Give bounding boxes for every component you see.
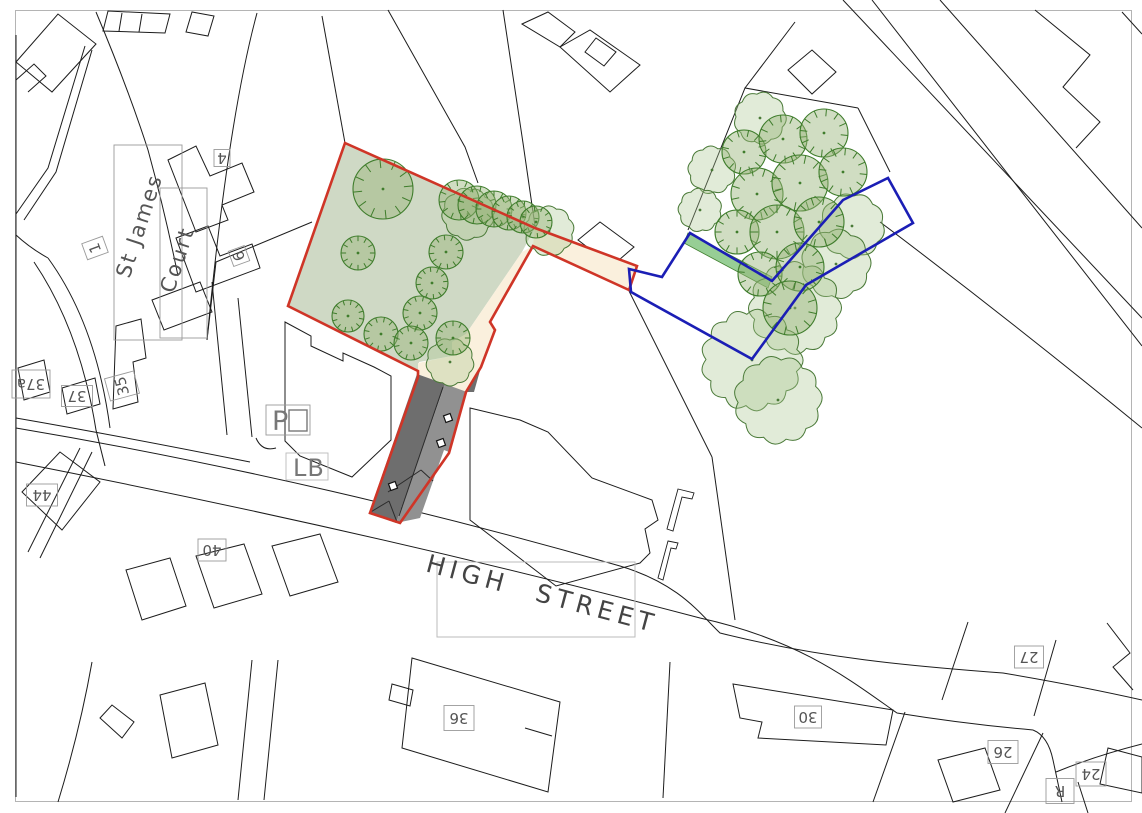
site-plan-page: 41637a373544403630272624RSt JamesCourtPL…: [0, 0, 1142, 813]
parcel-line: [522, 12, 575, 47]
tree-trunk-dot: [449, 361, 452, 364]
house-number-label: 37a: [12, 370, 50, 398]
parcel-line: [238, 298, 252, 437]
house-number-text: R: [1055, 782, 1065, 800]
parcel-line: [503, 10, 535, 226]
house-number-text: 37: [67, 387, 86, 405]
parcel-line: [388, 10, 478, 183]
parcel-line: [160, 683, 218, 758]
parcel-line: [663, 662, 670, 798]
parcel-line: [843, 0, 1142, 318]
parcel-line: [629, 291, 712, 457]
parcel-line: [168, 146, 254, 232]
house-number-label: 30: [795, 706, 822, 728]
parcel-line: [1107, 623, 1133, 690]
house-number-label: 24: [1076, 762, 1106, 786]
parcel-line: [207, 13, 257, 340]
parcel-line: [16, 235, 48, 258]
tree-trunk-dot: [711, 169, 714, 172]
gate-symbol: [667, 489, 694, 531]
street-name-label: HIGH STREET: [423, 549, 661, 639]
parcel-line: [389, 684, 413, 706]
parcel-line: [100, 705, 134, 738]
parcel-line: [1078, 782, 1088, 813]
tree: [341, 236, 375, 270]
parcel-line: [938, 748, 1000, 802]
parcel-line: [560, 30, 640, 92]
parcel-line: [745, 22, 795, 88]
parcel-line: [470, 408, 658, 586]
tree: [429, 235, 463, 269]
tree-trunk-dot: [851, 225, 854, 228]
parcel-line: [256, 438, 276, 449]
tree: [794, 197, 844, 247]
house-number-label: 26: [988, 741, 1018, 764]
letter-box-label: LB: [286, 453, 328, 482]
parcel-line: [322, 16, 345, 143]
tree-trunk-dot: [835, 263, 838, 266]
parcel-line: [58, 662, 92, 802]
house-number-text: 1: [85, 240, 105, 255]
rooflight: [437, 439, 446, 448]
post-office-label: P: [266, 405, 310, 437]
parcel-line: [402, 658, 560, 792]
house-number-text: 4: [217, 149, 227, 167]
parcel-line: [16, 64, 46, 92]
parcel-line: [873, 712, 905, 802]
tree: [819, 148, 867, 196]
map-linework: [16, 0, 1142, 813]
parcel-line: [238, 660, 252, 800]
gate-symbols: [658, 489, 694, 580]
parcel-line: [585, 38, 616, 66]
house-number-label: R: [1046, 779, 1074, 804]
house-number-text: 37a: [17, 375, 45, 393]
parcel-line: [103, 11, 170, 33]
house-number-text: 36: [449, 709, 468, 727]
house-number-text: 40: [202, 541, 221, 559]
gate-symbol: [658, 541, 678, 580]
tree-trunk-dot: [759, 117, 762, 120]
parcel-line: [272, 534, 338, 596]
tree-trunk-dot: [699, 209, 702, 212]
parcel-line: [525, 728, 552, 736]
parcel-line: [788, 50, 836, 94]
house-number-text: 27: [1019, 648, 1038, 666]
tree: [436, 321, 470, 355]
house-number-text: 44: [32, 486, 51, 504]
parcel-line: [1035, 10, 1100, 148]
parcel-line: [16, 418, 250, 462]
parcel-line: [119, 13, 122, 31]
po-text: P: [272, 406, 288, 437]
parcel-line: [880, 222, 1142, 428]
po-square: [289, 410, 307, 431]
site-plan-svg: 41637a373544403630272624RSt JamesCourtPL…: [0, 0, 1142, 813]
st-james-court-label: St JamesCourt: [111, 145, 207, 340]
parcel-line: [264, 660, 278, 800]
house-number-label: 40: [198, 539, 226, 561]
house-number-label: 36: [444, 706, 474, 731]
parcel-line: [872, 0, 1142, 346]
tree: [332, 300, 364, 332]
tree-trunk-dot: [777, 399, 780, 402]
house-number-label: 4: [214, 149, 230, 167]
parcel-line: [186, 12, 214, 36]
parcel-line: [940, 0, 1142, 228]
house-number-label: 27: [1015, 646, 1044, 668]
parcel-line: [139, 14, 142, 32]
house-number-text: 30: [798, 708, 817, 726]
parcel-line: [212, 282, 227, 435]
parcel-line: [16, 428, 1142, 700]
rooflight: [389, 482, 398, 491]
tree: [403, 296, 437, 330]
tree: [416, 267, 448, 299]
st-james-text: St James: [111, 171, 167, 281]
house-number-label: 1: [82, 236, 108, 259]
tree: [394, 326, 428, 360]
parcel-line: [942, 622, 968, 700]
house-number-text: 26: [993, 743, 1012, 761]
house-number-text: 6: [229, 248, 249, 263]
rooflight: [444, 414, 453, 423]
parcel-line: [126, 558, 186, 620]
parcel-line: [16, 14, 96, 92]
parcel-line: [96, 430, 105, 466]
house-number-text: 24: [1081, 765, 1100, 783]
lb-text: LB: [293, 454, 325, 482]
parcel-line: [712, 457, 735, 620]
